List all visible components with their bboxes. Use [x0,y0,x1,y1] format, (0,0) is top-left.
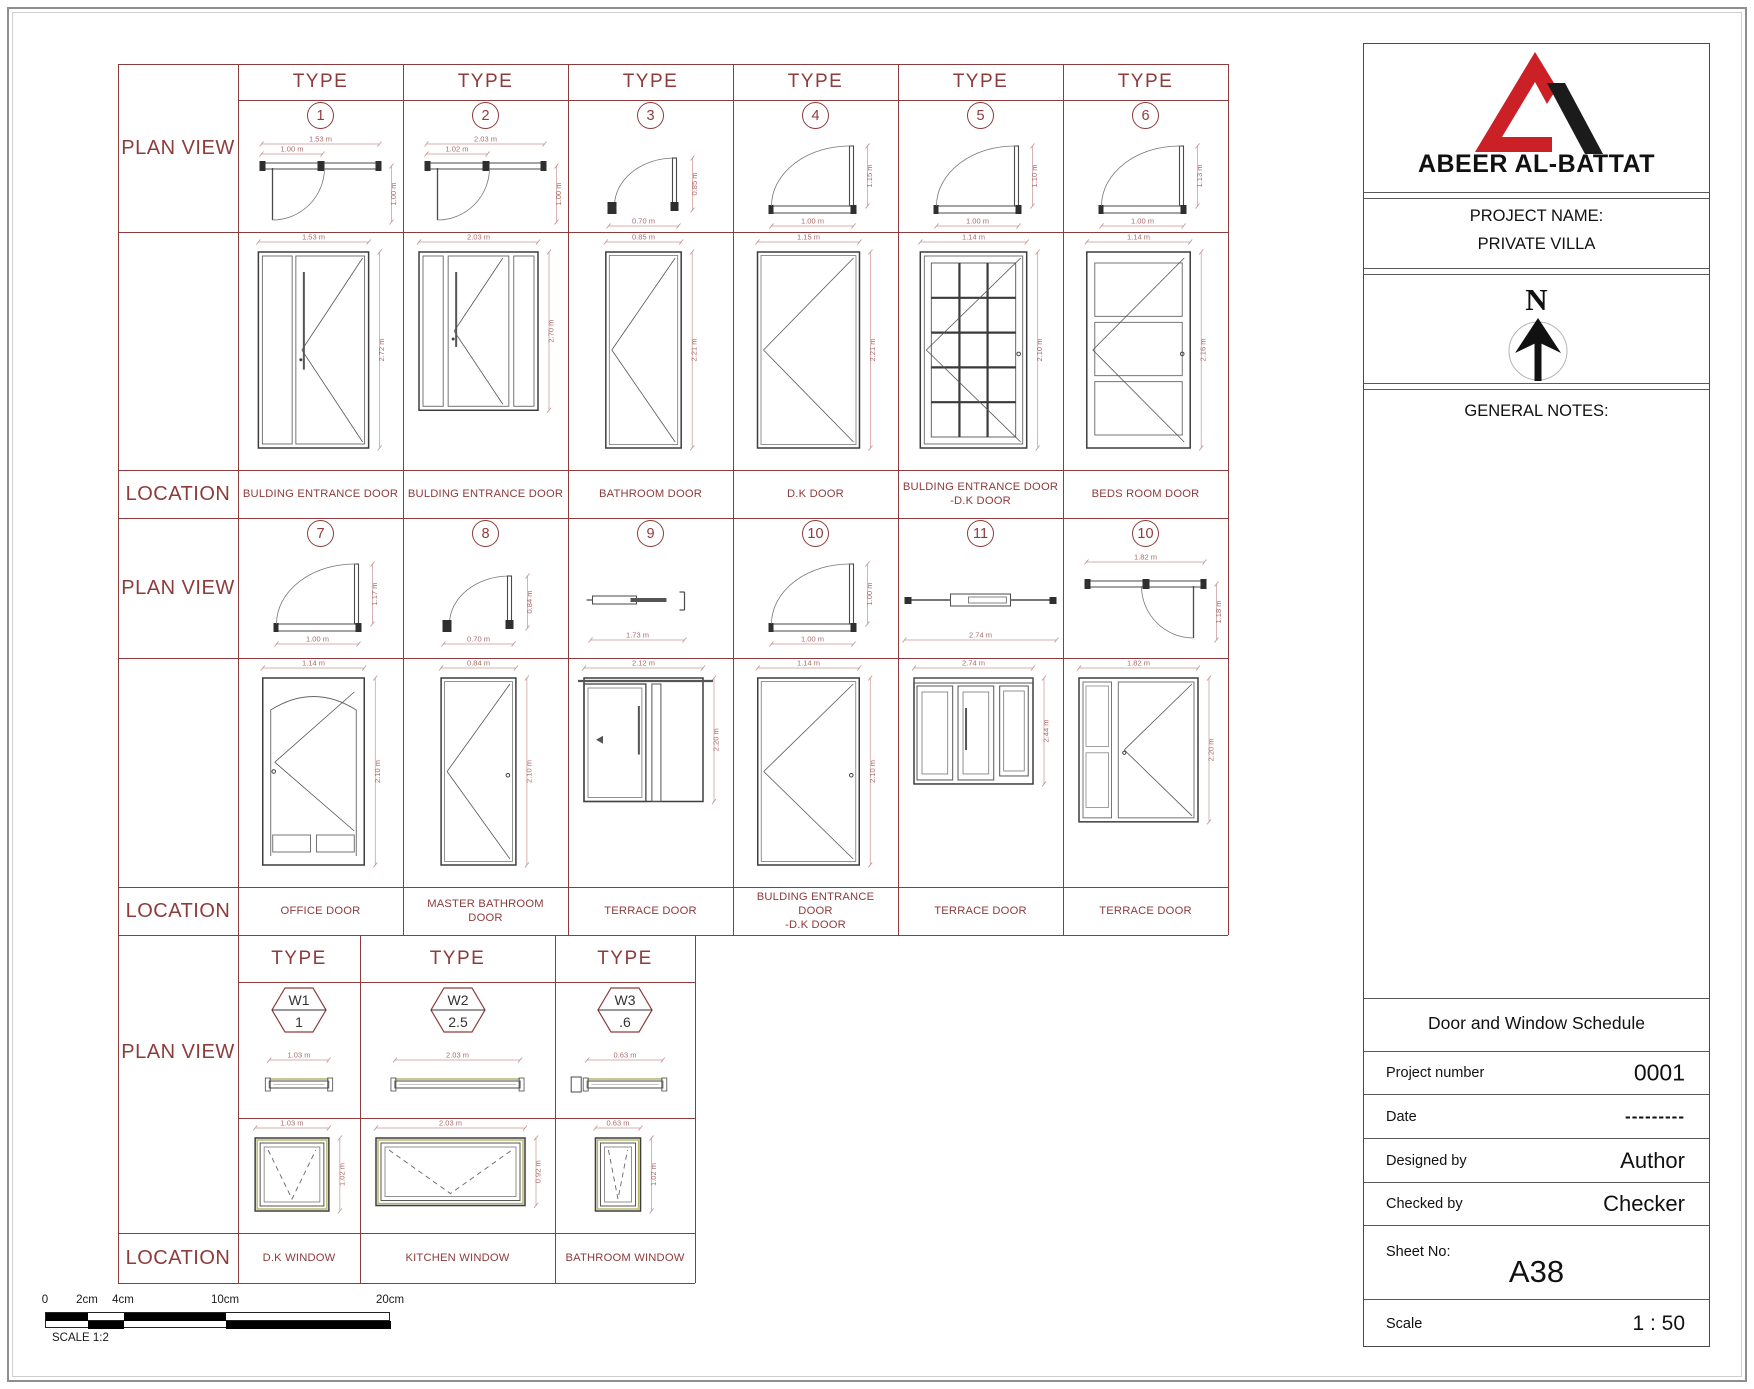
location-label: MASTER BATHROOM DOOR [403,887,568,935]
title-block: ABEER AL-BATTAT PROJECT NAME: PRIVATE VI… [1363,43,1710,1347]
plan-view-drawing: 1.53 m1.00 m1.00 m [238,132,403,232]
svg-text:0.70 m: 0.70 m [632,217,655,226]
location-label: TERRACE DOOR [1063,887,1228,935]
type-badge: 9 [637,520,664,547]
svg-text:1.02 m: 1.02 m [337,1163,346,1186]
elevation-drawing: 1.53 m2.72 m [238,232,403,470]
type-header: TYPE [733,64,898,100]
grid-line [118,1283,695,1284]
elevation-drawing: 0.84 m2.10 m [403,658,568,887]
plan-view-drawing: 0.63 m [555,1036,695,1118]
window-tag-badge: W2 2.5 [429,986,487,1034]
type-badge: 1 [307,102,334,129]
svg-text:2.20 m: 2.20 m [712,728,721,751]
scale-tick: 10cm [205,1294,245,1306]
field-label: Designed by [1386,1153,1467,1169]
location-label: OFFICE DOOR [238,887,403,935]
svg-text:1.00 m: 1.00 m [389,183,398,206]
svg-text:2.16 m: 2.16 m [1199,339,1208,362]
company-name: ABEER AL-BATTAT [1364,150,1709,179]
field-designed-by: Designed by Author [1364,1138,1709,1182]
scale-bar-segment [226,1321,391,1329]
elevation-drawing: 1.03 m1.02 m [238,1118,360,1233]
plan-view-drawing: 1.82 m1.18 m [1063,550,1228,658]
svg-text:1.03 m: 1.03 m [281,1119,304,1128]
elevation-drawing: 1.14 m2.10 m [733,658,898,887]
window-tag-badge: W1 1 [270,986,328,1034]
svg-text:2.03 m: 2.03 m [446,1051,469,1060]
field-value: --------- [1625,1107,1685,1127]
plan-view-drawing: 1.00 m1.00 m [733,550,898,658]
field-value: 0001 [1634,1060,1685,1087]
logo-cell: ABEER AL-BATTAT [1364,44,1709,192]
svg-text:2.21 m: 2.21 m [690,339,699,362]
scale-tick: 2cm [67,1294,107,1306]
svg-text:1.02 m: 1.02 m [649,1163,658,1186]
type-header: TYPE [238,64,403,100]
grid-line [695,935,696,1283]
svg-text:1.82 m: 1.82 m [1134,553,1157,562]
svg-text:1.00 m: 1.00 m [801,635,824,644]
plan-view-drawing: 1.03 m [238,1036,360,1118]
svg-text:2.10 m: 2.10 m [1035,339,1044,362]
svg-text:1.53 m: 1.53 m [302,233,325,242]
svg-text:0.84 m: 0.84 m [525,591,534,614]
location-label: TERRACE DOOR [898,887,1063,935]
svg-text:1.82 m: 1.82 m [1127,659,1150,668]
scale-bar-segment [88,1321,124,1329]
scale-tick: 4cm [103,1294,143,1306]
type-header: TYPE [898,64,1063,100]
type-badge: 2 [472,102,499,129]
svg-text:1.14 m: 1.14 m [1127,233,1150,242]
svg-text:2.72 m: 2.72 m [377,339,386,362]
elevation-drawing: 2.03 m0.92 m [360,1118,555,1233]
svg-text:W2: W2 [447,992,468,1008]
plan-view-drawing: 1.17 m1.00 m [238,550,403,658]
svg-text:0.63 m: 0.63 m [607,1119,630,1128]
svg-text:2.70 m: 2.70 m [547,320,556,343]
divider [1364,192,1709,199]
plan-view-drawing: 0.70 m0.85 m [568,132,733,232]
location-label: D.K WINDOW [238,1233,360,1283]
north-arrow-icon [1502,314,1574,382]
svg-text:2.21 m: 2.21 m [868,339,877,362]
scale-bar-segment [46,1313,88,1321]
svg-text:1.14 m: 1.14 m [962,233,985,242]
type-badge: 3 [637,102,664,129]
field-label: Scale [1386,1316,1422,1332]
row-label-plan-view: PLAN VIEW [118,64,238,232]
field-checked-by: Checked by Checker [1364,1182,1709,1225]
svg-text:2.74 m: 2.74 m [962,659,985,668]
plan-view-drawing: 2.03 m [360,1036,555,1118]
sheet-number: A38 [1364,1254,1709,1290]
location-label: BULDING ENTRANCE DOOR -D.K DOOR [733,887,898,935]
svg-text:2.74 m: 2.74 m [969,631,992,640]
scale-tick: 20cm [370,1294,410,1306]
plan-view-drawing: 0.70 m0.84 m [403,550,568,658]
type-badge: 11 [967,520,994,547]
plan-view-drawing: 2.03 m1.02 m1.00 m [403,132,568,232]
svg-text:2.03 m: 2.03 m [439,1119,462,1128]
scale-value: 1 : 50 [1632,1312,1685,1336]
grid-line [238,982,695,983]
location-label: BULDING ENTRANCE DOOR -D.K DOOR [898,470,1063,518]
svg-text:1.00 m: 1.00 m [1131,217,1154,226]
svg-text:1.14 m: 1.14 m [302,659,325,668]
grid-line [118,935,119,1283]
type-badge: 10 [802,520,829,547]
type-header: TYPE [568,64,733,100]
svg-text:1.00 m: 1.00 m [554,183,563,206]
field-project-number: Project number 0001 [1364,1051,1709,1094]
svg-text:W1: W1 [289,992,310,1008]
svg-text:0.84 m: 0.84 m [467,659,490,668]
elevation-drawing: 2.74 m2.44 m [898,658,1063,887]
location-label: BATHROOM WINDOW [555,1233,695,1283]
field-scale: Scale 1 : 50 [1364,1299,1709,1348]
plan-view-drawing: 1.13 m1.00 m [1063,132,1228,232]
field-sheet-no: Sheet No: A38 [1364,1225,1709,1299]
type-header: TYPE [1063,64,1228,100]
divider [1364,383,1709,390]
type-header: TYPE [238,935,360,982]
elevation-drawing: 2.03 m2.70 m [403,232,568,470]
row-label-plan-view: PLAN VIEW [118,518,238,658]
divider [1364,998,1709,999]
location-label: TERRACE DOOR [568,887,733,935]
type-badge: 10 [1132,520,1159,547]
elevation-drawing: 1.15 m2.21 m [733,232,898,470]
row-label-location: LOCATION [118,470,238,518]
project-name-value: PRIVATE VILLA [1364,235,1709,254]
svg-text:0.85 m: 0.85 m [690,173,699,196]
scale-tick: 0 [25,1294,65,1306]
plan-view-drawing: 1.10 m1.00 m [898,132,1063,232]
svg-text:1.00 m: 1.00 m [865,583,874,606]
svg-text:0.63 m: 0.63 m [614,1051,637,1060]
svg-text:1.73 m: 1.73 m [626,631,649,640]
svg-text:1.18 m: 1.18 m [1214,601,1223,624]
svg-text:1.00 m: 1.00 m [281,145,304,154]
plan-view-drawing: 1.73 m [568,550,733,658]
row-label-location: LOCATION [118,1233,238,1283]
svg-text:2.12 m: 2.12 m [632,659,655,668]
svg-text:2.03 m: 2.03 m [474,135,497,144]
grid-line [118,518,1228,519]
svg-text:1.15 m: 1.15 m [865,165,874,188]
row-label-location: LOCATION [118,887,238,935]
svg-text:2.03 m: 2.03 m [467,233,490,242]
drawing-sheet: SCALE 1:2 ABEER AL-BATTAT PROJECT NAME: … [0,0,1754,1389]
svg-text:1.15 m: 1.15 m [797,233,820,242]
elevation-drawing: 0.85 m2.21 m [568,232,733,470]
svg-text:0.70 m: 0.70 m [467,635,490,644]
svg-text:1.13 m: 1.13 m [1195,165,1204,188]
location-label: BATHROOM DOOR [568,470,733,518]
scale-bar-caption: SCALE 1:2 [52,1332,109,1344]
svg-text:2.10 m: 2.10 m [868,760,877,783]
field-label: Project number [1386,1065,1484,1081]
field-date: Date --------- [1364,1094,1709,1138]
scale-bar [45,1312,390,1328]
row-label-plan-view: PLAN VIEW [118,1012,238,1092]
field-value: Checker [1603,1191,1685,1217]
svg-text:2.5: 2.5 [448,1014,468,1030]
plan-view-drawing: 1.15 m1.00 m [733,132,898,232]
elevation-drawing: 2.12 m2.20 m [568,658,733,887]
elevation-drawing: 1.14 m2.16 m [1063,232,1228,470]
svg-text:2.20 m: 2.20 m [1207,738,1216,761]
svg-text:1.17 m: 1.17 m [370,583,379,606]
svg-text:2.10 m: 2.10 m [373,760,382,783]
type-badge: 4 [802,102,829,129]
svg-text:0.85 m: 0.85 m [632,233,655,242]
svg-text:1.14 m: 1.14 m [797,659,820,668]
svg-text:1.00 m: 1.00 m [801,217,824,226]
type-header: TYPE [555,935,695,982]
svg-text:2.10 m: 2.10 m [524,760,533,783]
elevation-drawing: 0.63 m1.02 m [555,1118,695,1233]
svg-text:1.00 m: 1.00 m [306,635,329,644]
svg-text:0.92 m: 0.92 m [534,1160,543,1183]
divider [1364,268,1709,275]
location-label: KITCHEN WINDOW [360,1233,555,1283]
grid-line [1228,64,1229,935]
elevation-drawing: 1.82 m2.20 m [1063,658,1228,887]
general-notes-label: GENERAL NOTES: [1364,402,1709,421]
field-value: Author [1620,1148,1685,1174]
project-name-label: PROJECT NAME: [1364,207,1709,226]
location-label: BULDING ENTRANCE DOOR [403,470,568,518]
svg-text:1.03 m: 1.03 m [288,1051,311,1060]
svg-text:1.02 m: 1.02 m [446,145,469,154]
svg-text:W3: W3 [615,992,636,1008]
plan-view-drawing: 2.74 m [898,550,1063,658]
svg-text:1.00 m: 1.00 m [966,217,989,226]
scale-bar-segment [124,1313,226,1321]
north-letter: N [1364,282,1709,318]
type-header: TYPE [360,935,555,982]
window-tag-badge: W3 .6 [596,986,654,1034]
location-label: BEDS ROOM DOOR [1063,470,1228,518]
field-label: Checked by [1386,1196,1463,1212]
svg-text:1.53 m: 1.53 m [309,135,332,144]
company-logo-icon [1472,50,1603,156]
svg-text:2.44 m: 2.44 m [1042,720,1051,743]
location-label: BULDING ENTRANCE DOOR [238,470,403,518]
svg-text:1.10 m: 1.10 m [1030,165,1039,188]
type-badge: 6 [1132,102,1159,129]
type-badge: 5 [967,102,994,129]
svg-text:.6: .6 [619,1014,631,1030]
svg-text:1: 1 [295,1014,303,1030]
type-header: TYPE [403,64,568,100]
field-label: Date [1386,1109,1417,1125]
sheet-title: Door and Window Schedule [1364,1013,1709,1034]
type-badge: 8 [472,520,499,547]
location-label: D.K DOOR [733,470,898,518]
type-badge: 7 [307,520,334,547]
elevation-drawing: 1.14 m2.10 m [898,232,1063,470]
elevation-drawing: 1.14 m2.10 m [238,658,403,887]
